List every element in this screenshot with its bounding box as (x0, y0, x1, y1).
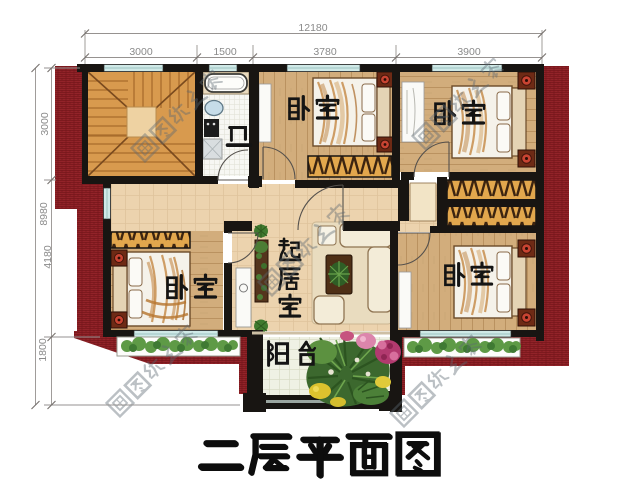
svg-text:12180: 12180 (298, 22, 327, 34)
svg-text:1500: 1500 (213, 46, 237, 58)
svg-text:8980: 8980 (38, 202, 50, 226)
svg-text:1800: 1800 (37, 338, 49, 362)
svg-text:4180: 4180 (42, 245, 54, 269)
svg-text:3900: 3900 (457, 46, 481, 58)
svg-text:3000: 3000 (39, 112, 51, 136)
svg-text:3000: 3000 (129, 46, 153, 58)
svg-text:3780: 3780 (313, 46, 337, 58)
